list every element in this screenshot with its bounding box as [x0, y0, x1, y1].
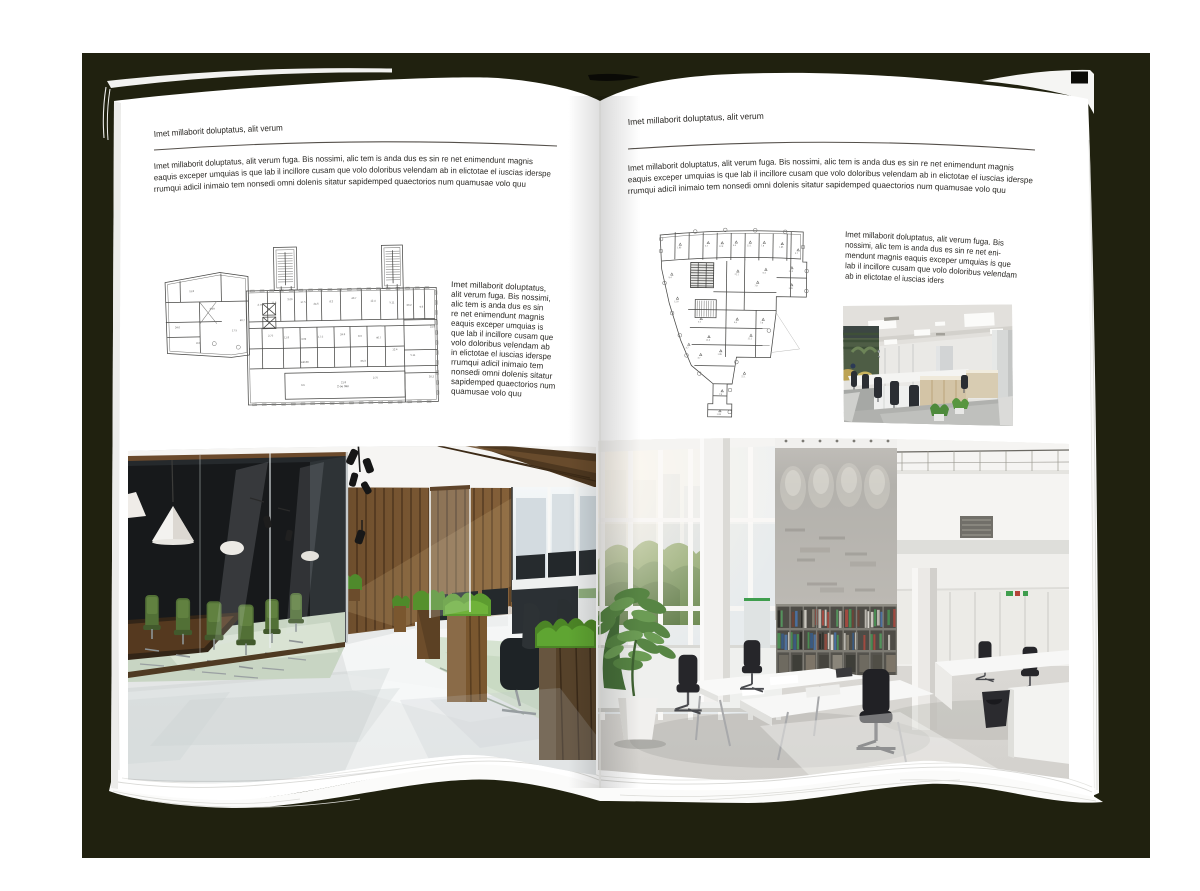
svg-text:2.75: 2.75 [257, 303, 263, 307]
svg-text:11.8: 11.8 [271, 300, 276, 304]
svg-text:66.3: 66.3 [361, 359, 367, 363]
svg-text:40.7: 40.7 [376, 335, 382, 339]
svg-text:5.11: 5.11 [410, 353, 415, 357]
svg-text:12.4: 12.4 [392, 347, 398, 351]
svg-text:40.7: 40.7 [351, 296, 357, 300]
svg-text:12.4: 12.4 [370, 299, 376, 303]
svg-text:8.3: 8.3 [358, 334, 362, 338]
svg-text:24.6: 24.6 [313, 302, 319, 306]
svg-text:40.7: 40.7 [240, 318, 246, 322]
svg-text:8.3: 8.3 [329, 299, 333, 303]
svg-text:30.2: 30.2 [407, 303, 413, 307]
svg-text:3.09: 3.09 [301, 337, 307, 341]
svg-text:17.5: 17.5 [232, 328, 238, 332]
svg-text:140.88: 140.88 [301, 360, 310, 364]
svg-text:24.6: 24.6 [175, 325, 181, 329]
svg-text:3.09: 3.09 [287, 297, 293, 301]
svg-text:21.8: 21.8 [430, 324, 436, 328]
svg-text:17.5: 17.5 [300, 300, 306, 304]
svg-text:2-oe 3an: 2-oe 3an [337, 384, 349, 388]
svg-text:17.5: 17.5 [318, 335, 324, 339]
svg-text:9.6: 9.6 [420, 305, 424, 309]
svg-text:2.75: 2.75 [268, 334, 274, 338]
svg-text:8.3: 8.3 [196, 341, 200, 345]
svg-text:9.6: 9.6 [301, 383, 305, 387]
svg-text:24.6: 24.6 [340, 332, 346, 336]
svg-text:3.09: 3.09 [210, 307, 216, 311]
svg-text:2.75: 2.75 [373, 376, 379, 380]
svg-text:11.8: 11.8 [284, 335, 289, 339]
svg-text:30.2: 30.2 [429, 374, 435, 378]
svg-text:11.8: 11.8 [189, 289, 194, 293]
svg-text:5.11: 5.11 [389, 300, 394, 304]
